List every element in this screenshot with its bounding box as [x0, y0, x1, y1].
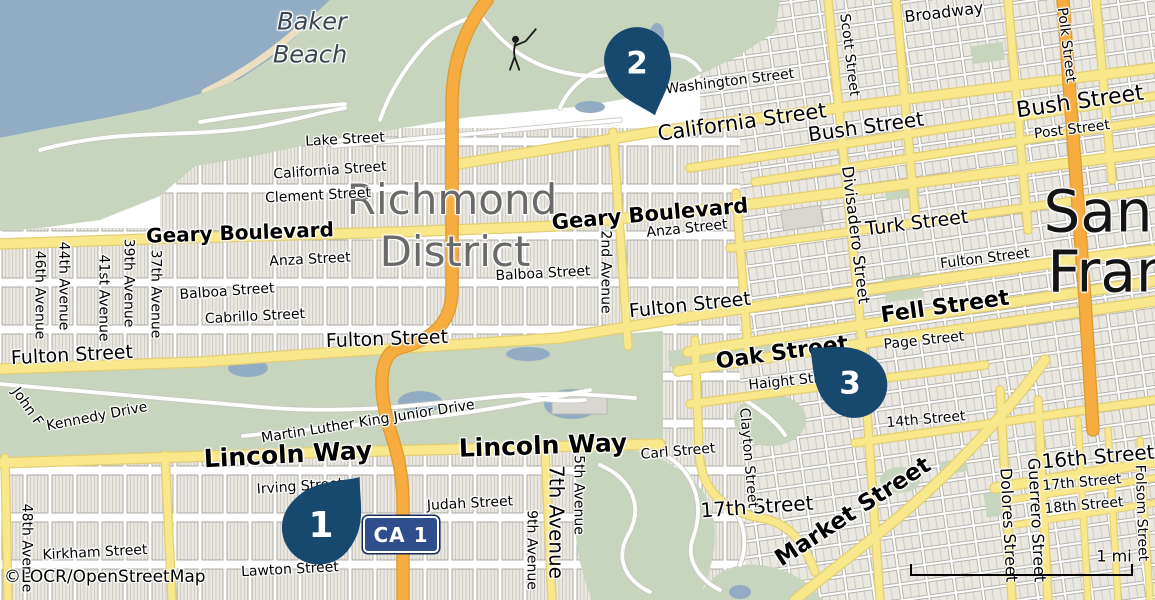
label-bush-street: Bush Street — [1015, 82, 1145, 123]
map-pin-3-number: 3 — [839, 366, 861, 402]
label-41st-avenue: 41st Avenue — [96, 254, 111, 341]
label-lincoln-way: Lincoln Way — [458, 430, 627, 462]
label-cabrillo-street: Cabrillo Street — [205, 307, 306, 327]
label-46th-avenue: 46th Avenue — [32, 251, 47, 340]
label-washington-street: Washington Street — [665, 67, 795, 97]
label-scott-street: Scott Street — [837, 13, 862, 97]
label-2nd-avenue: 2nd Avenue — [598, 230, 613, 313]
scale-bar — [910, 564, 1133, 576]
label-richmond: Richmond — [347, 178, 557, 222]
label-john-f: John F — [9, 385, 46, 429]
label-fran: Fran — [1047, 242, 1155, 303]
map-canvas: BakerBeachRichmondDistrictSanFranLake St… — [0, 0, 1155, 600]
label-beach: Beach — [273, 42, 347, 67]
label-39th-avenue: 39th Avenue — [121, 239, 136, 328]
label-7th-avenue: 7th Avenue — [546, 465, 567, 579]
ca-1-highway-shield: CA 1 — [363, 516, 439, 553]
label-post-street: Post Street — [1033, 118, 1111, 142]
label-fulton-street: Fulton Street — [326, 328, 449, 352]
scale-label: 1 mi — [1096, 547, 1131, 566]
label-18th-street: 18th Street — [1044, 495, 1124, 517]
label-folsom-street: Folsom Street — [1132, 465, 1150, 562]
label-judah-street: Judah Street — [427, 494, 514, 513]
label-lake-street: Lake Street — [305, 131, 385, 150]
label-polk-street: Polk Street — [1054, 7, 1078, 84]
label-9th-avenue: 9th Avenue — [524, 510, 539, 590]
label-37th-avenue: 37th Avenue — [148, 250, 163, 339]
label-14th-street: 14th Street — [886, 409, 966, 431]
label-kirkham-street: Kirkham Street — [42, 543, 148, 563]
label-california-street: California Street — [656, 99, 828, 145]
label-san: San — [1043, 182, 1152, 243]
label-balboa-street: Balboa Street — [495, 264, 591, 284]
map-attribution: ©LOCR/OpenStreetMap — [4, 567, 206, 587]
label-fulton-street: Fulton Street — [939, 246, 1030, 272]
label-balboa-street: Balboa Street — [179, 281, 275, 302]
label-5th-avenue: 5th Avenue — [571, 455, 586, 535]
label-17th-street: 17th Street — [1042, 472, 1122, 494]
label-kennedy-drive: Kennedy Drive — [45, 400, 148, 434]
label-44th-avenue: 44th Avenue — [56, 242, 71, 331]
label-geary-boulevard: Geary Boulevard — [146, 219, 334, 247]
label-fell-street: Fell Street — [879, 287, 1010, 328]
label-turk-street: Turk Street — [864, 208, 969, 240]
label-lincoln-way: Lincoln Way — [203, 437, 373, 472]
label-baker: Baker — [277, 9, 347, 34]
label-page-street: Page Street — [883, 329, 965, 352]
label-fulton-street: Fulton Street — [11, 343, 134, 369]
label-carl-street: Carl Street — [640, 441, 716, 462]
label-anza-street: Anza Street — [269, 251, 351, 270]
map-pin-1-number: 1 — [308, 505, 333, 546]
label-broadway: Broadway — [904, 0, 985, 26]
map-pin-2-number: 2 — [626, 46, 648, 82]
label-fulton-street: Fulton Street — [628, 290, 752, 323]
label-clayton-street: Clayton Street — [736, 407, 759, 508]
map-labels-layer: BakerBeachRichmondDistrictSanFranLake St… — [0, 0, 1155, 600]
